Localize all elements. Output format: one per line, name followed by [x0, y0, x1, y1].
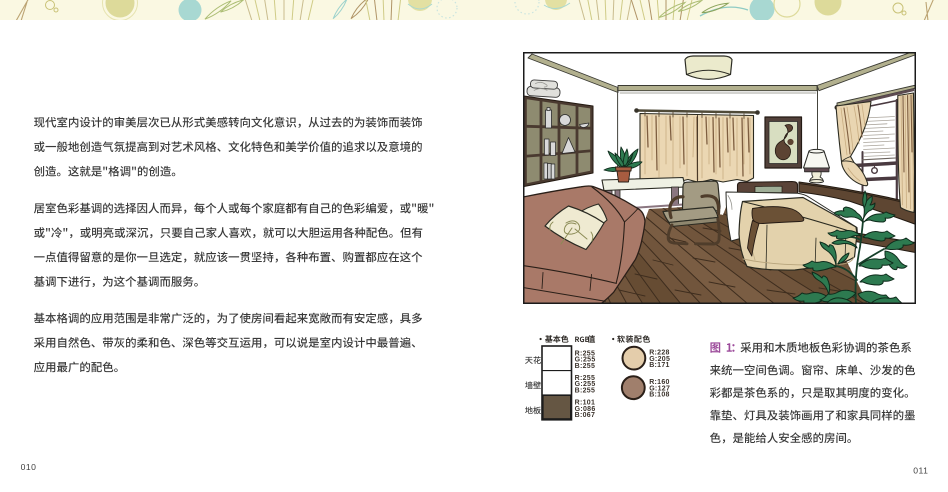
svg-text:B:255: B:255 — [575, 363, 596, 370]
svg-text:B:255: B:255 — [575, 387, 596, 394]
svg-text:B:171: B:171 — [649, 362, 670, 369]
svg-text:B:108: B:108 — [649, 392, 670, 399]
svg-text:011: 011 — [913, 465, 928, 475]
svg-text:B:067: B:067 — [575, 412, 596, 419]
svg-text:010: 010 — [21, 462, 37, 472]
